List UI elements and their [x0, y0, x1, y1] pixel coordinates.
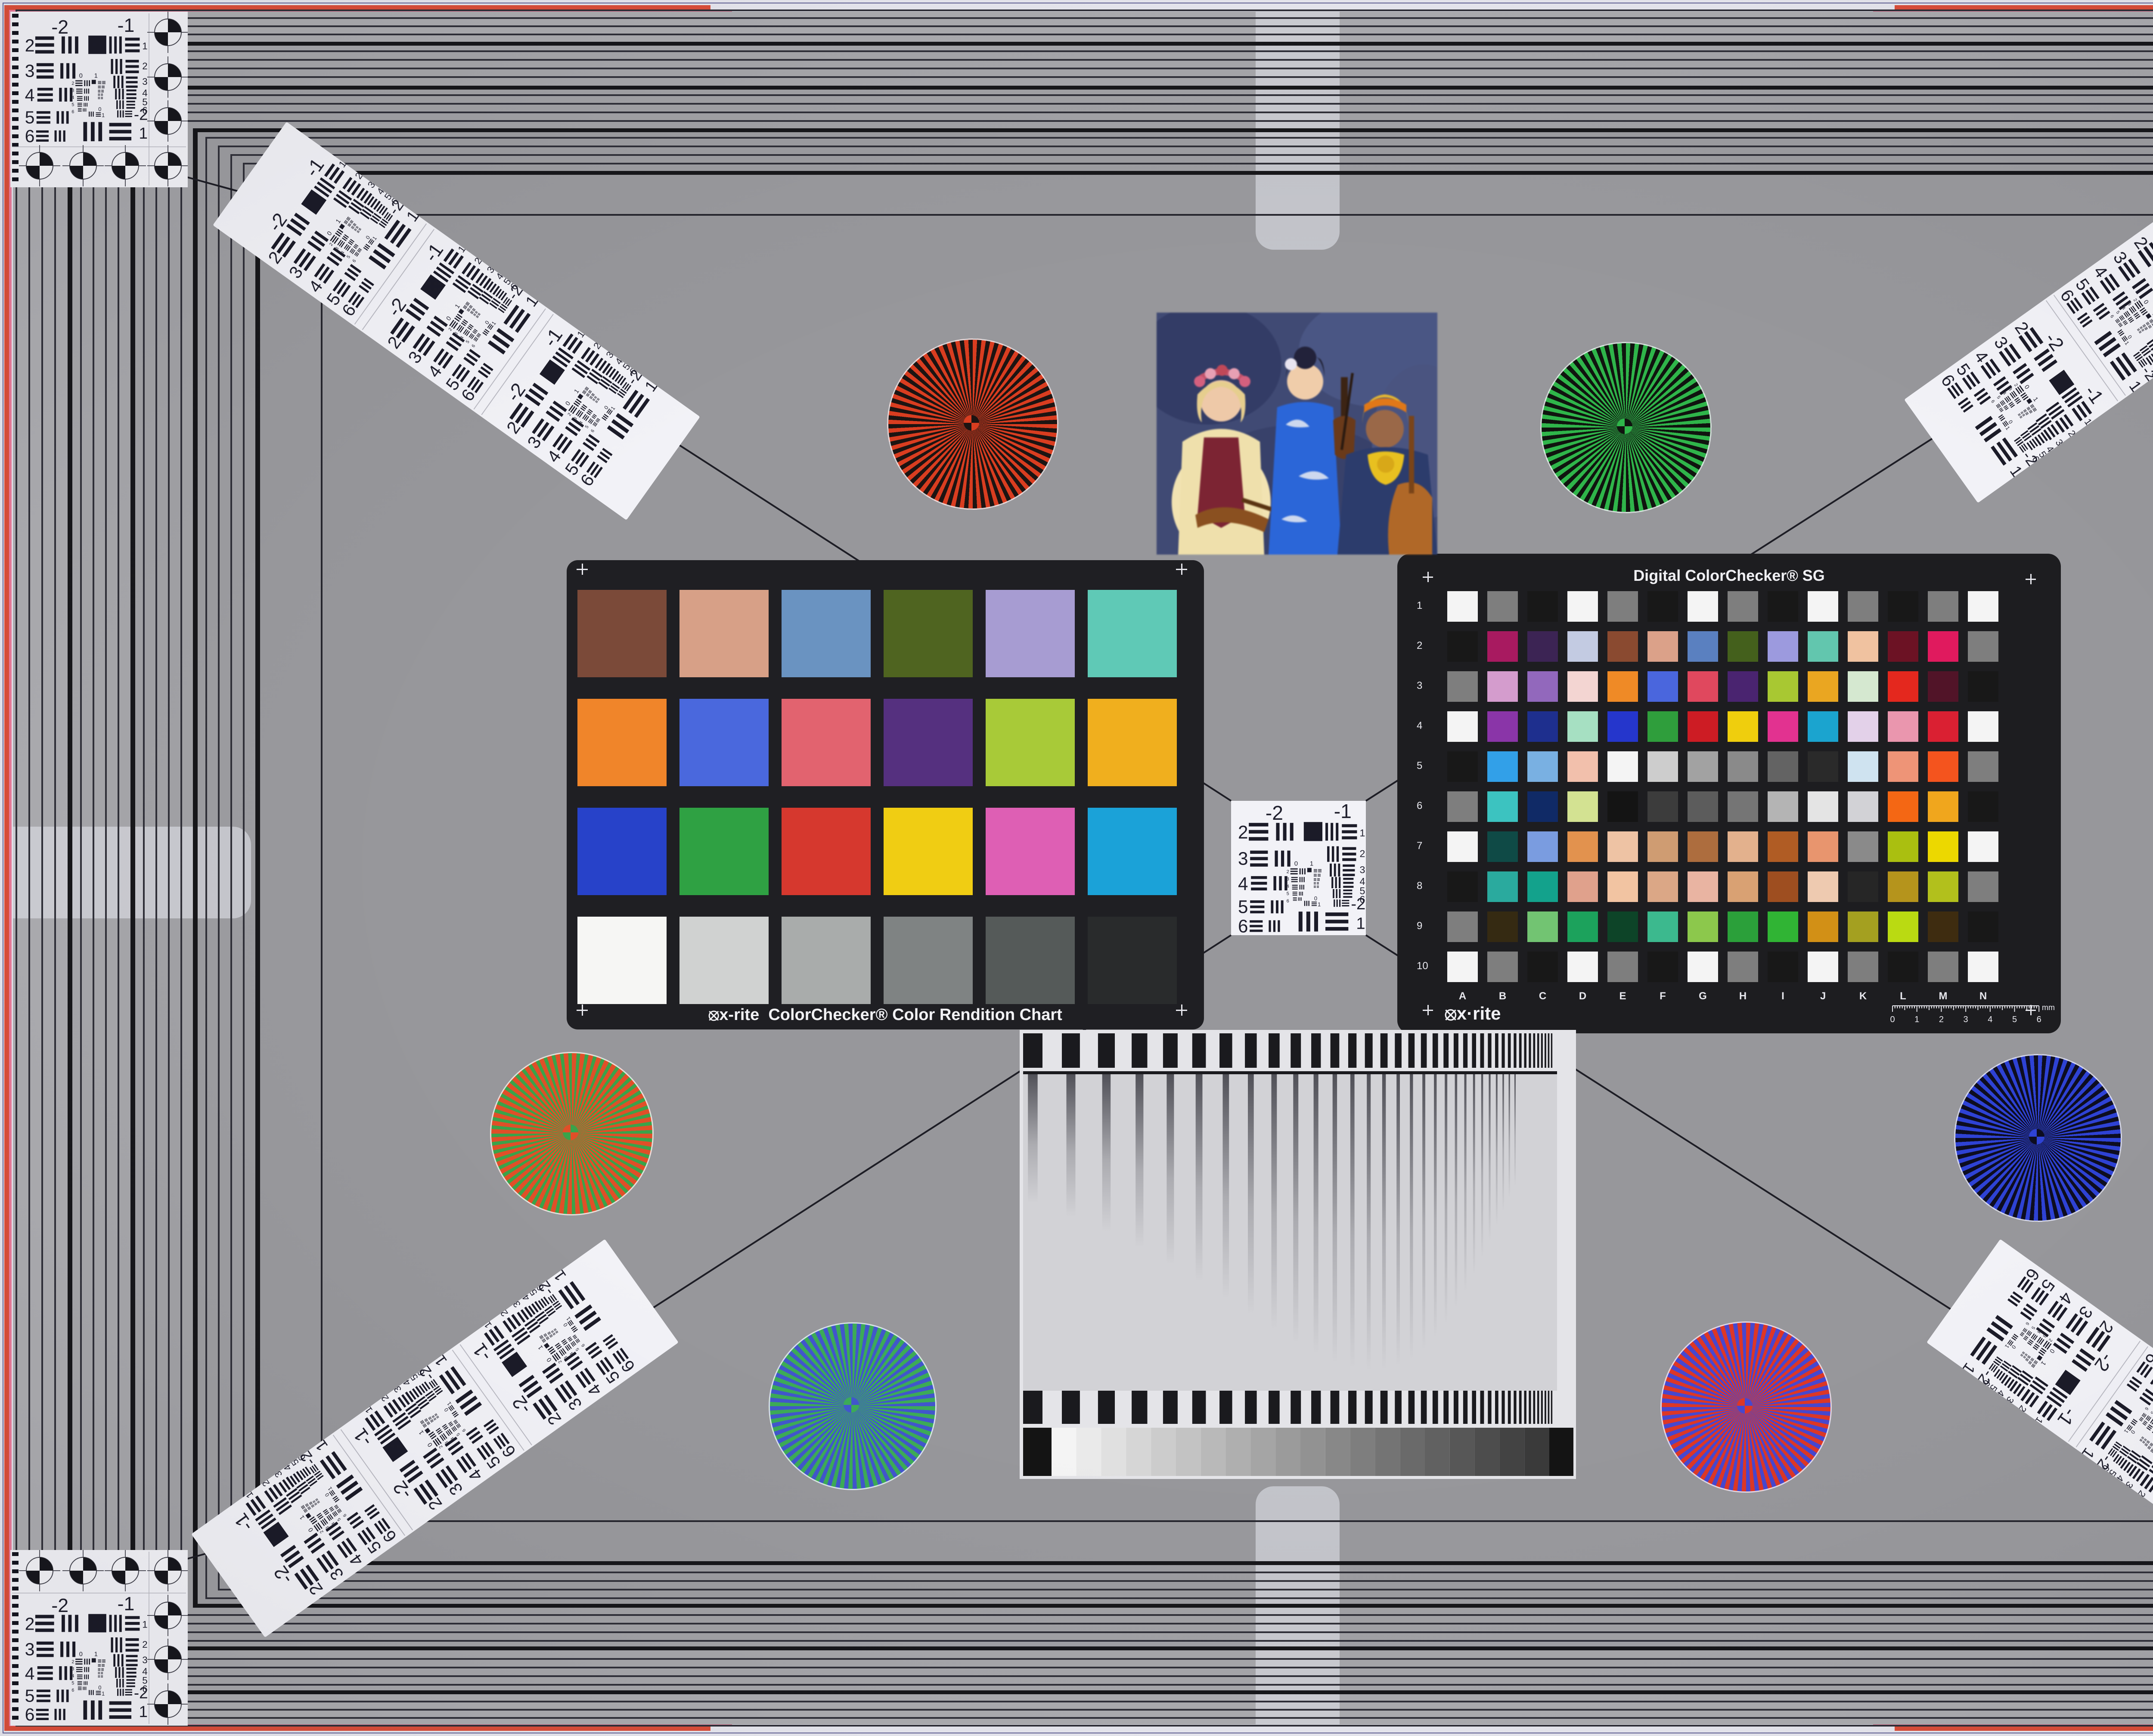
svg-text:0: 0 — [1890, 1015, 1895, 1024]
svg-text:2: 2 — [1939, 1015, 1944, 1024]
svg-text:3: 3 — [1964, 1015, 1968, 1024]
svg-text:5: 5 — [2012, 1015, 2017, 1024]
svg-text:1: 1 — [1914, 1015, 1919, 1024]
svg-text:6: 6 — [2037, 1015, 2041, 1024]
svg-text:4: 4 — [1988, 1015, 1992, 1024]
svg-text:mm: mm — [2042, 1003, 2055, 1012]
